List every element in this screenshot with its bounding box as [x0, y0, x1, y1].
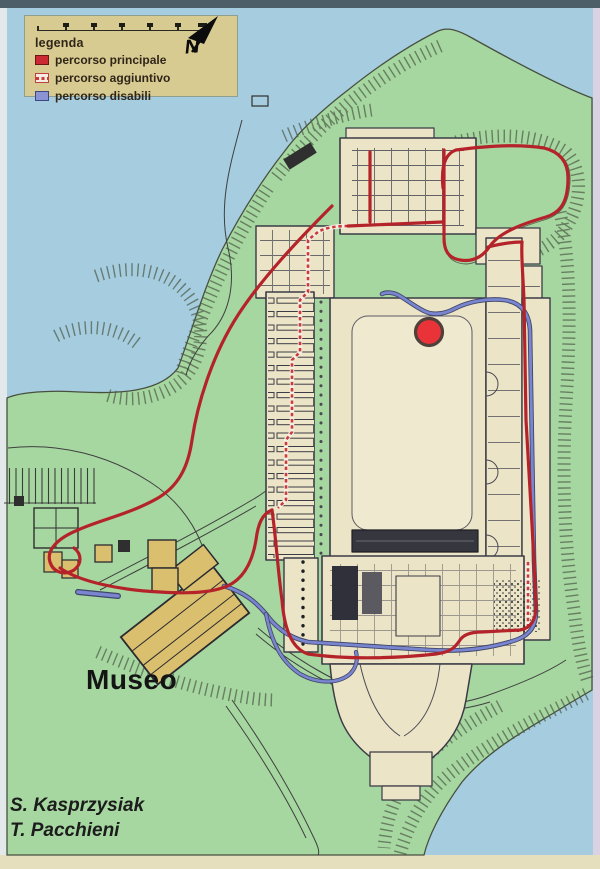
legend-item-label: percorso aggiuntivo — [55, 71, 170, 85]
museum-label: Museo — [86, 664, 177, 696]
north-arrow: N — [178, 10, 230, 62]
legend-item-label: percorso principale — [55, 53, 166, 67]
legend-item-accessible: percorso disabili — [35, 87, 229, 105]
legend-item-additional: percorso aggiuntivo — [35, 69, 229, 87]
route-accessible-swatch — [35, 91, 49, 101]
map-sign-photo: legenda percorso principale percorso agg… — [0, 0, 600, 869]
route-main-swatch — [35, 55, 49, 65]
credit-line: T. Pacchieni — [10, 819, 144, 844]
credit-line: S. Kasprzysiak — [10, 794, 144, 819]
route-additional-swatch — [35, 73, 49, 83]
legend-item-label: percorso disabili — [55, 89, 151, 103]
map-credits: S. Kasprzysiak T. Pacchieni — [10, 794, 144, 843]
north-label: N — [184, 35, 201, 59]
site-map — [0, 0, 600, 869]
you-are-here-dot — [416, 319, 443, 346]
